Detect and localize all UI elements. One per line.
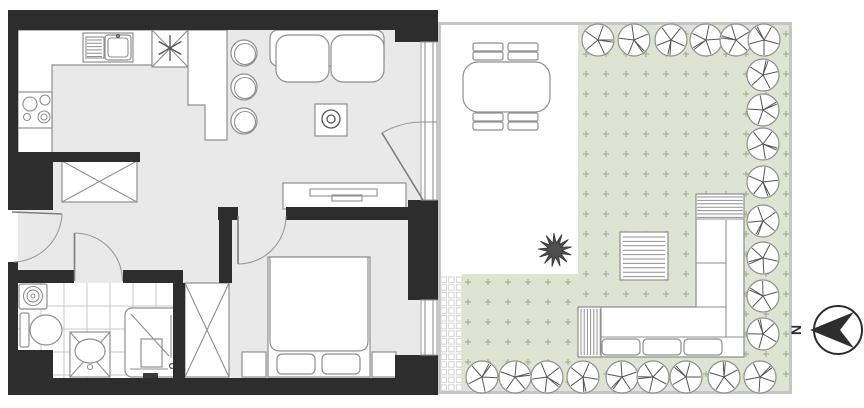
wall-bedroom-stub-right bbox=[286, 207, 408, 220]
tree-icon bbox=[720, 24, 752, 56]
bed-blanket bbox=[270, 257, 368, 351]
tree-icon bbox=[499, 361, 531, 393]
sofa bbox=[270, 30, 384, 82]
garden-chair bbox=[508, 43, 538, 60]
tree-icon bbox=[744, 361, 776, 393]
tree-icon bbox=[690, 24, 722, 56]
tree-icon bbox=[747, 280, 779, 312]
refrigerator bbox=[152, 30, 188, 67]
wall-right-top bbox=[395, 30, 438, 42]
wall-top bbox=[8, 10, 438, 30]
wall-left-bottom-block bbox=[8, 350, 53, 378]
tree-icon bbox=[747, 242, 779, 274]
wall-left-upper bbox=[8, 30, 18, 152]
pillow bbox=[322, 354, 360, 374]
coffee-table bbox=[315, 104, 347, 136]
tree-icon bbox=[670, 361, 702, 393]
wall-left-block bbox=[8, 152, 53, 210]
tree-icon bbox=[747, 318, 779, 350]
tree-icon bbox=[618, 24, 650, 56]
wall-right-mid bbox=[408, 200, 438, 300]
tree-icon bbox=[747, 205, 779, 237]
bedroom-window bbox=[421, 300, 437, 355]
toilet bbox=[20, 313, 62, 347]
stripes-sofa-cap-top bbox=[697, 197, 743, 217]
wall-bedroom-stub-left bbox=[218, 207, 238, 220]
wall-bottom bbox=[8, 378, 438, 395]
wall-bedroom-left bbox=[219, 220, 232, 283]
wall-right-bottom bbox=[395, 355, 438, 378]
striped-garden-table bbox=[620, 232, 668, 280]
tree-icon bbox=[606, 361, 638, 393]
garden bbox=[440, 24, 791, 394]
tree-icon bbox=[747, 94, 779, 126]
tree-icon bbox=[582, 24, 614, 56]
tv-stand bbox=[283, 183, 406, 209]
floor-plan: N bbox=[0, 0, 864, 408]
garden-chair bbox=[473, 113, 503, 130]
cooktop bbox=[18, 92, 52, 128]
hallway-wardrobe bbox=[62, 161, 137, 202]
washing-machine bbox=[19, 284, 47, 309]
garden-chair bbox=[473, 43, 503, 60]
tree-icon bbox=[747, 166, 779, 198]
stripes-sofa-cap-left bbox=[581, 309, 600, 355]
wall-bathroom-stub-right bbox=[123, 270, 183, 283]
compass-label: N bbox=[788, 325, 804, 335]
tree-icon bbox=[655, 24, 687, 56]
nightstand bbox=[242, 352, 266, 377]
compass: N bbox=[788, 306, 862, 354]
tree-icon bbox=[531, 361, 563, 393]
wall-bathroom-stub-left bbox=[18, 270, 74, 283]
tree-icon bbox=[637, 361, 669, 393]
tree-icon bbox=[747, 59, 779, 91]
bedroom-wardrobe bbox=[185, 283, 229, 377]
apartment bbox=[8, 10, 438, 395]
vanity-sink bbox=[70, 332, 110, 377]
tree-icon bbox=[747, 128, 779, 160]
pillow bbox=[277, 354, 315, 374]
dining-table bbox=[463, 62, 550, 112]
tree-icon bbox=[708, 361, 740, 393]
tree-icon bbox=[567, 361, 599, 393]
wall-bathroom-right bbox=[173, 283, 185, 378]
tree-icon bbox=[748, 24, 780, 56]
living-room-window bbox=[421, 42, 437, 200]
wall-hallway bbox=[53, 152, 140, 162]
bar-stools bbox=[231, 40, 257, 134]
windows bbox=[421, 42, 437, 355]
sink bbox=[83, 33, 133, 62]
tree-icon bbox=[466, 361, 498, 393]
garden-chair bbox=[508, 113, 538, 130]
nightstand bbox=[372, 352, 396, 377]
